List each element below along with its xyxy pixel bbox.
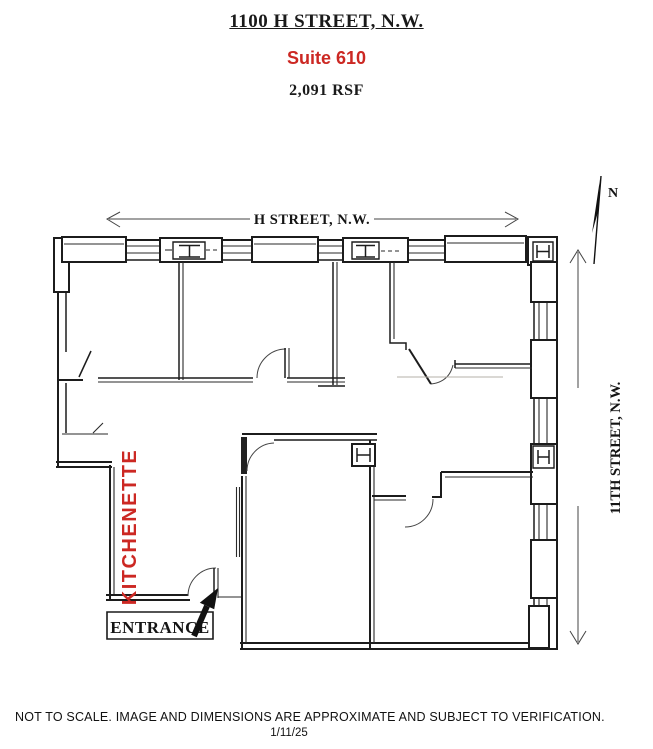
disclaimer-text: NOT TO SCALE. IMAGE AND DIMENSIONS ARE A… (15, 710, 605, 724)
north-arrow-icon: N (592, 176, 618, 264)
h-street-label: H STREET, N.W. (254, 212, 370, 228)
alcove-door-leaf (93, 423, 103, 433)
eleventh-street-dimension-arrow: 11TH STREET, N.W. (570, 250, 624, 644)
center-room (237, 434, 378, 649)
upper-right-door (409, 349, 453, 384)
bottom-right-office (372, 472, 533, 527)
center-room-door-leaf (241, 437, 247, 474)
top-wall-windows (54, 236, 557, 292)
plan-date: 1/11/25 (0, 727, 578, 739)
kitchenette-label: KITCHENETTE (119, 449, 141, 606)
eleventh-street-label: 11TH STREET, N.W. (608, 382, 624, 515)
right-wall-windows (529, 262, 557, 648)
floorplan-page: 1100 H STREET, N.W. Suite 610 2,091 RSF … (0, 0, 653, 749)
office-door-arc (257, 348, 289, 378)
h-street-dimension-arrow: H STREET, N.W. (107, 212, 518, 228)
north-letter: N (608, 186, 618, 201)
left-door-leaf (79, 351, 91, 377)
floor-plan-drawing: H STREET, N.W. 11TH STREET, N.W. N (0, 0, 653, 749)
